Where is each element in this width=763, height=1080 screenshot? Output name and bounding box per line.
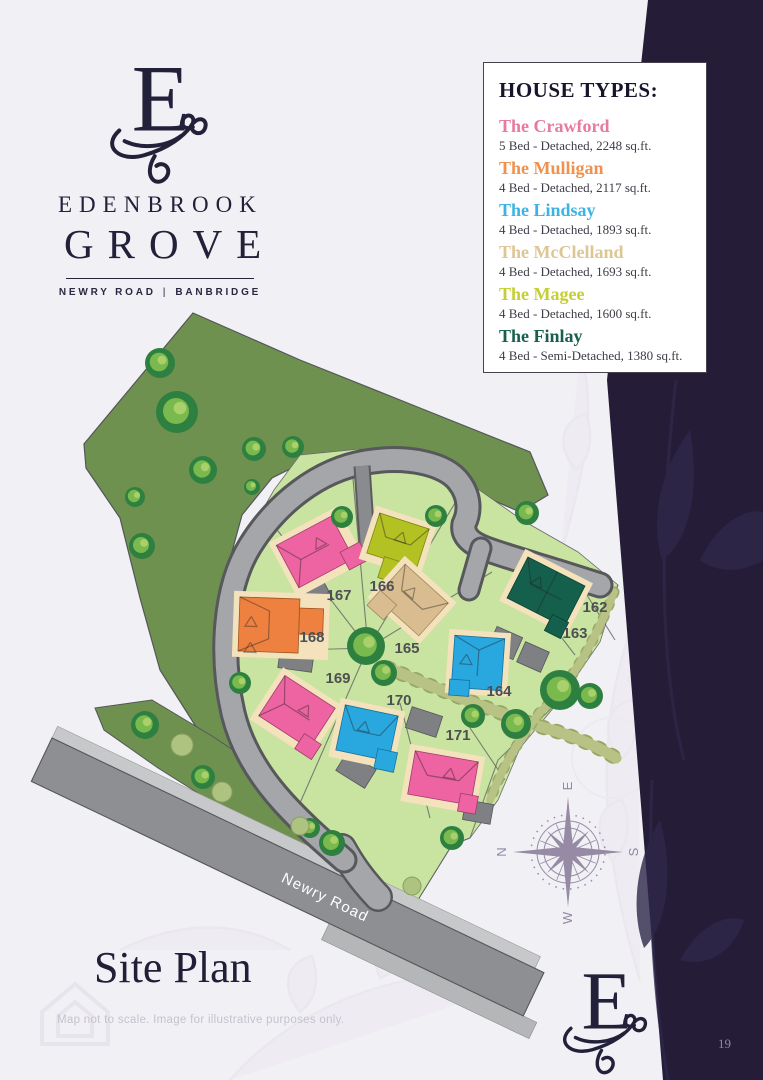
house-type-detail: 4 Bed - Detached, 2117 sq.ft. xyxy=(499,180,692,196)
house-type-name: The Crawford xyxy=(499,117,692,137)
legend-entry-mulligan: The Mulligan 4 Bed - Detached, 2117 sq.f… xyxy=(499,159,692,196)
house-type-name: The Mulligan xyxy=(499,159,692,179)
page-title: Site Plan xyxy=(94,942,252,993)
legend-entry-finlay: The Finlay 4 Bed - Semi-Detached, 1380 s… xyxy=(499,327,692,364)
legend-entry-magee: The Magee 4 Bed - Detached, 1600 sq.ft. xyxy=(499,285,692,322)
house-type-name: The Finlay xyxy=(499,327,692,347)
house-type-name: The McClelland xyxy=(499,243,692,263)
house-type-detail: 4 Bed - Detached, 1600 sq.ft. xyxy=(499,306,692,322)
brand-monogram xyxy=(102,42,218,188)
page-number: 19 xyxy=(718,1036,731,1052)
brochure-page: E xyxy=(0,0,763,1080)
house-type-detail: 4 Bed - Detached, 1893 sq.ft. xyxy=(499,222,692,238)
legend-entry-lindsay: The Lindsay 4 Bed - Detached, 1893 sq.ft… xyxy=(499,201,692,238)
footer-monogram xyxy=(560,952,652,1078)
house-type-detail: 4 Bed - Detached, 1693 sq.ft. xyxy=(499,264,692,280)
brand-location-divider: | xyxy=(163,287,169,298)
brand-location-road: NEWRY ROAD xyxy=(59,287,156,298)
brand-location-town: BANBRIDGE xyxy=(175,287,261,298)
legend-title: HOUSE TYPES: xyxy=(499,78,692,103)
brand-name-secondary: GROVE xyxy=(64,220,262,268)
house-type-detail: 5 Bed - Detached, 2248 sq.ft. xyxy=(499,138,692,154)
brand-name: EDENBROOK xyxy=(58,192,262,218)
house-types-legend: HOUSE TYPES: The Crawford 5 Bed - Detach… xyxy=(483,62,707,373)
map-disclaimer: Map not to scale. Image for illustrative… xyxy=(57,1014,344,1026)
legend-entry-crawford: The Crawford 5 Bed - Detached, 2248 sq.f… xyxy=(499,117,692,154)
legend-entry-mcclelland: The McClelland 4 Bed - Detached, 1693 sq… xyxy=(499,243,692,280)
house-type-name: The Lindsay xyxy=(499,201,692,221)
logo-divider xyxy=(66,278,254,279)
house-type-detail: 4 Bed - Semi-Detached, 1380 sq.ft. xyxy=(499,348,692,364)
brand-location: NEWRY ROAD|BANBRIDGE xyxy=(58,287,262,298)
brand-logo: EDENBROOK GROVE NEWRY ROAD|BANBRIDGE xyxy=(58,42,262,298)
house-type-name: The Magee xyxy=(499,285,692,305)
